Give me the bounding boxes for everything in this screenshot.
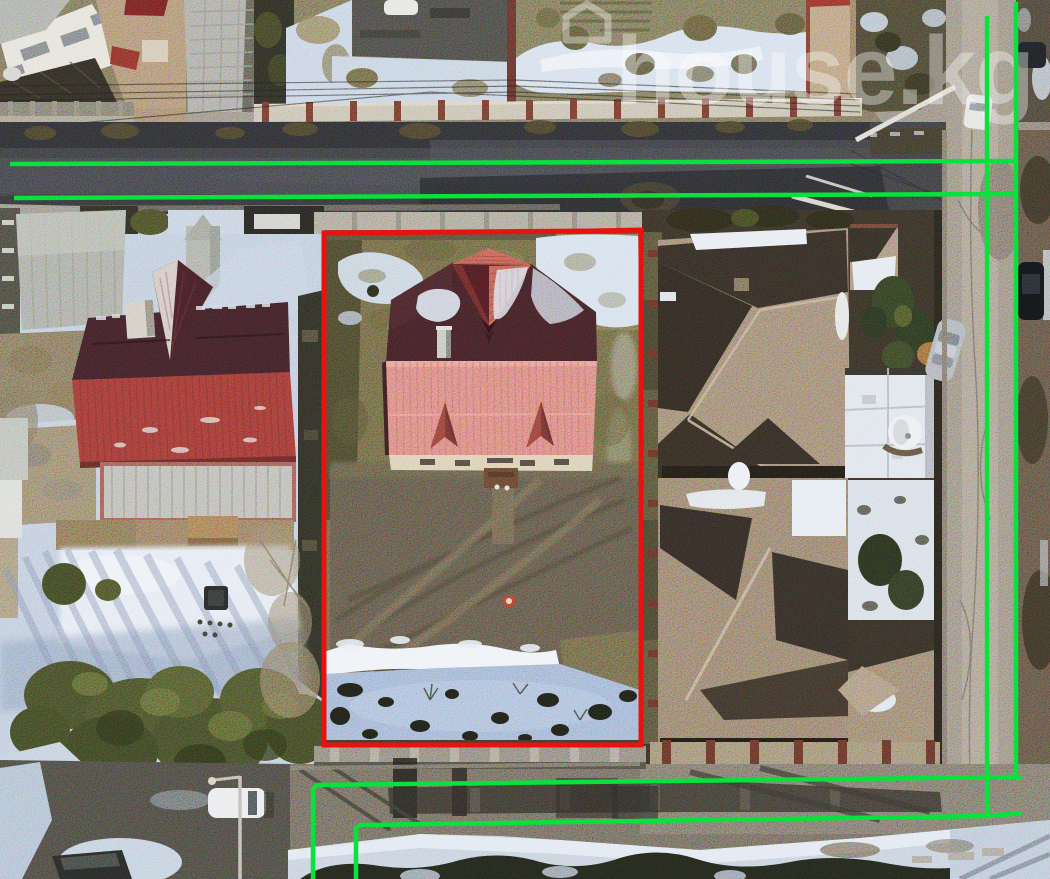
svg-text:house.kg: house.kg [616, 16, 1034, 125]
